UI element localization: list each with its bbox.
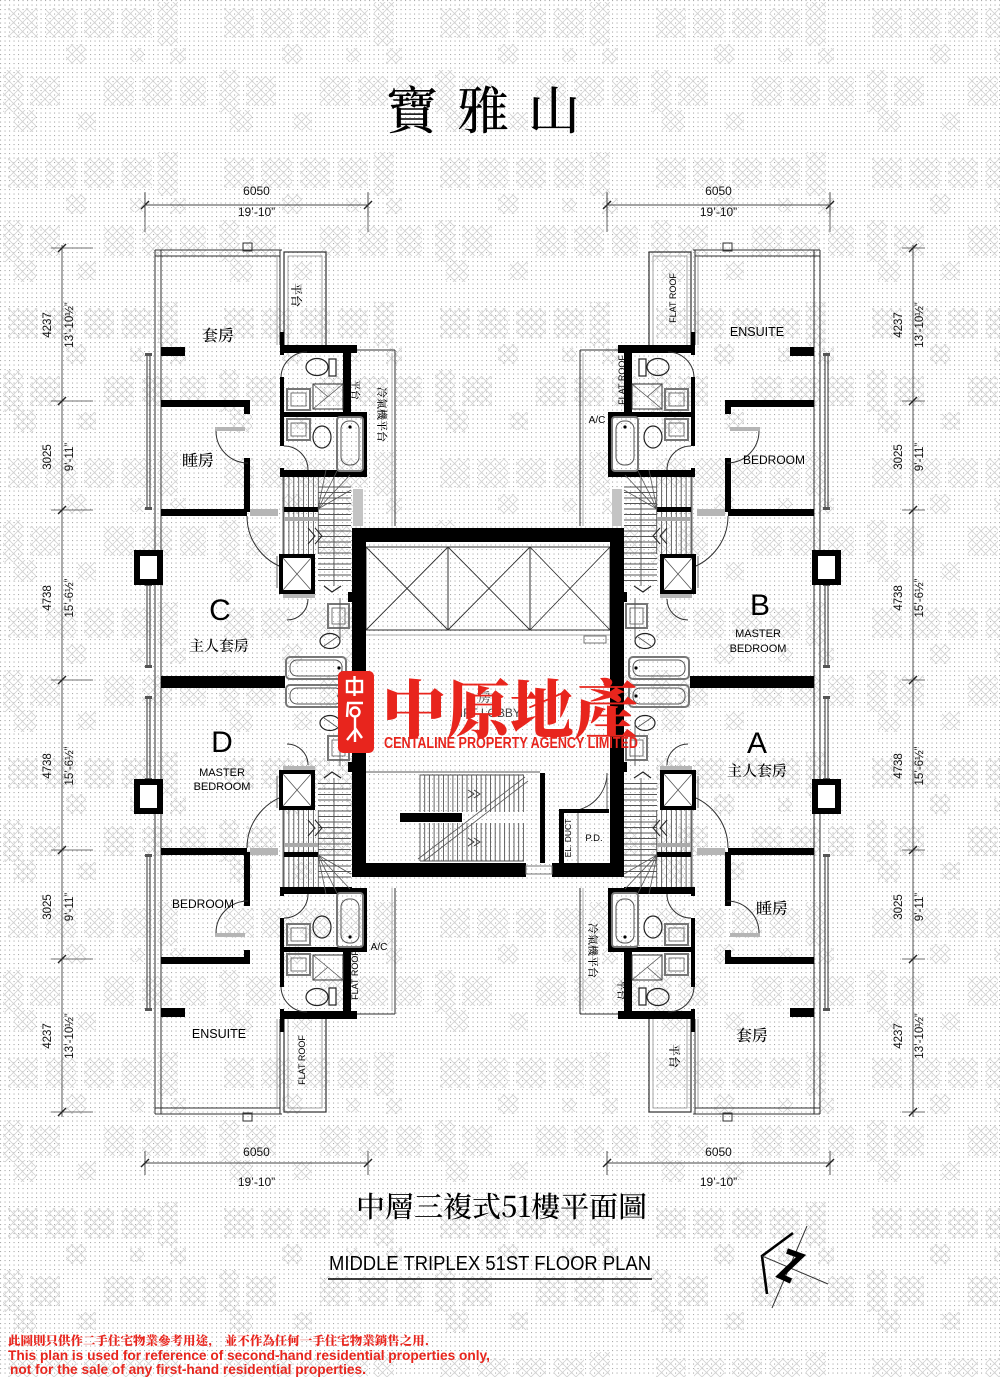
svg-text:4237: 4237 <box>893 1023 905 1049</box>
svg-text:15’-6½”: 15’-6½” <box>914 578 926 617</box>
svg-text:P.D.: P.D. <box>585 833 602 844</box>
svg-text:3025: 3025 <box>42 894 54 920</box>
svg-text:13’-10½”: 13’-10½” <box>914 302 926 348</box>
svg-text:4237: 4237 <box>893 312 905 338</box>
svg-text:A/C: A/C <box>371 942 388 953</box>
svg-text:4738: 4738 <box>893 585 905 611</box>
svg-text:FLAT ROOF: FLAT ROOF <box>350 950 360 1000</box>
svg-text:9’-11”: 9’-11” <box>914 443 926 472</box>
svg-text:13’-10½”: 13’-10½” <box>914 1013 926 1059</box>
svg-text:FLAT ROOF: FLAT ROOF <box>668 273 678 323</box>
svg-text:3025: 3025 <box>893 444 905 470</box>
svg-text:19’-10”: 19’-10” <box>700 1175 737 1189</box>
svg-text:6050: 6050 <box>243 1145 270 1159</box>
svg-text:15’-6½”: 15’-6½” <box>64 746 76 785</box>
svg-text:FLAT ROOF: FLAT ROOF <box>297 1035 307 1085</box>
svg-text:3025: 3025 <box>893 894 905 920</box>
svg-text:D: D <box>211 726 233 759</box>
svg-text:13’-10½”: 13’-10½” <box>64 1013 76 1059</box>
svg-text:C: C <box>209 594 231 627</box>
svg-text:BEDROOM: BEDROOM <box>172 897 234 911</box>
svg-text:13’-10½”: 13’-10½” <box>64 302 76 348</box>
svg-text:This plan is used for referenc: This plan is used for reference of secon… <box>8 1348 490 1363</box>
svg-text:A/C: A/C <box>589 415 606 426</box>
svg-text:9’-11”: 9’-11” <box>64 893 76 922</box>
svg-text:9’-11”: 9’-11” <box>914 893 926 922</box>
svg-text:15’-6½”: 15’-6½” <box>914 746 926 785</box>
svg-text:4738: 4738 <box>893 753 905 779</box>
svg-text:4738: 4738 <box>42 753 54 779</box>
svg-text:CENTALINE PROPERTY AGENCY LIMI: CENTALINE PROPERTY AGENCY LIMITED <box>384 735 638 752</box>
svg-text:9’-11”: 9’-11” <box>64 443 76 472</box>
svg-text:6050: 6050 <box>705 184 732 198</box>
svg-text:6050: 6050 <box>243 184 270 198</box>
svg-text:4738: 4738 <box>42 585 54 611</box>
svg-text:4237: 4237 <box>42 1023 54 1049</box>
svg-text:A: A <box>747 727 767 760</box>
svg-text:19’-10”: 19’-10” <box>238 205 275 219</box>
svg-text:BEDROOM: BEDROOM <box>743 453 805 467</box>
svg-text:not for the sale of any first-: not for the sale of any first-hand resid… <box>10 1362 366 1377</box>
svg-text:19’-10”: 19’-10” <box>238 1175 275 1189</box>
svg-text:MASTER: MASTER <box>735 628 781 640</box>
svg-text:B: B <box>750 589 770 622</box>
svg-text:4237: 4237 <box>42 312 54 338</box>
svg-text:EL. DUCT: EL. DUCT <box>563 819 573 858</box>
svg-text:FLAT ROOF: FLAT ROOF <box>617 355 627 405</box>
svg-text:BEDROOM: BEDROOM <box>194 781 251 793</box>
svg-text:MASTER: MASTER <box>199 767 245 779</box>
svg-text:15’-6½”: 15’-6½” <box>64 578 76 617</box>
svg-text:3025: 3025 <box>42 444 54 470</box>
svg-text:MIDDLE TRIPLEX 51ST FLOOR PLAN: MIDDLE TRIPLEX 51ST FLOOR PLAN <box>329 1252 651 1275</box>
svg-text:19’-10”: 19’-10” <box>700 205 737 219</box>
svg-text:ENSUITE: ENSUITE <box>730 325 784 339</box>
svg-text:BEDROOM: BEDROOM <box>730 643 787 655</box>
svg-text:6050: 6050 <box>705 1145 732 1159</box>
svg-text:ENSUITE: ENSUITE <box>192 1027 246 1041</box>
